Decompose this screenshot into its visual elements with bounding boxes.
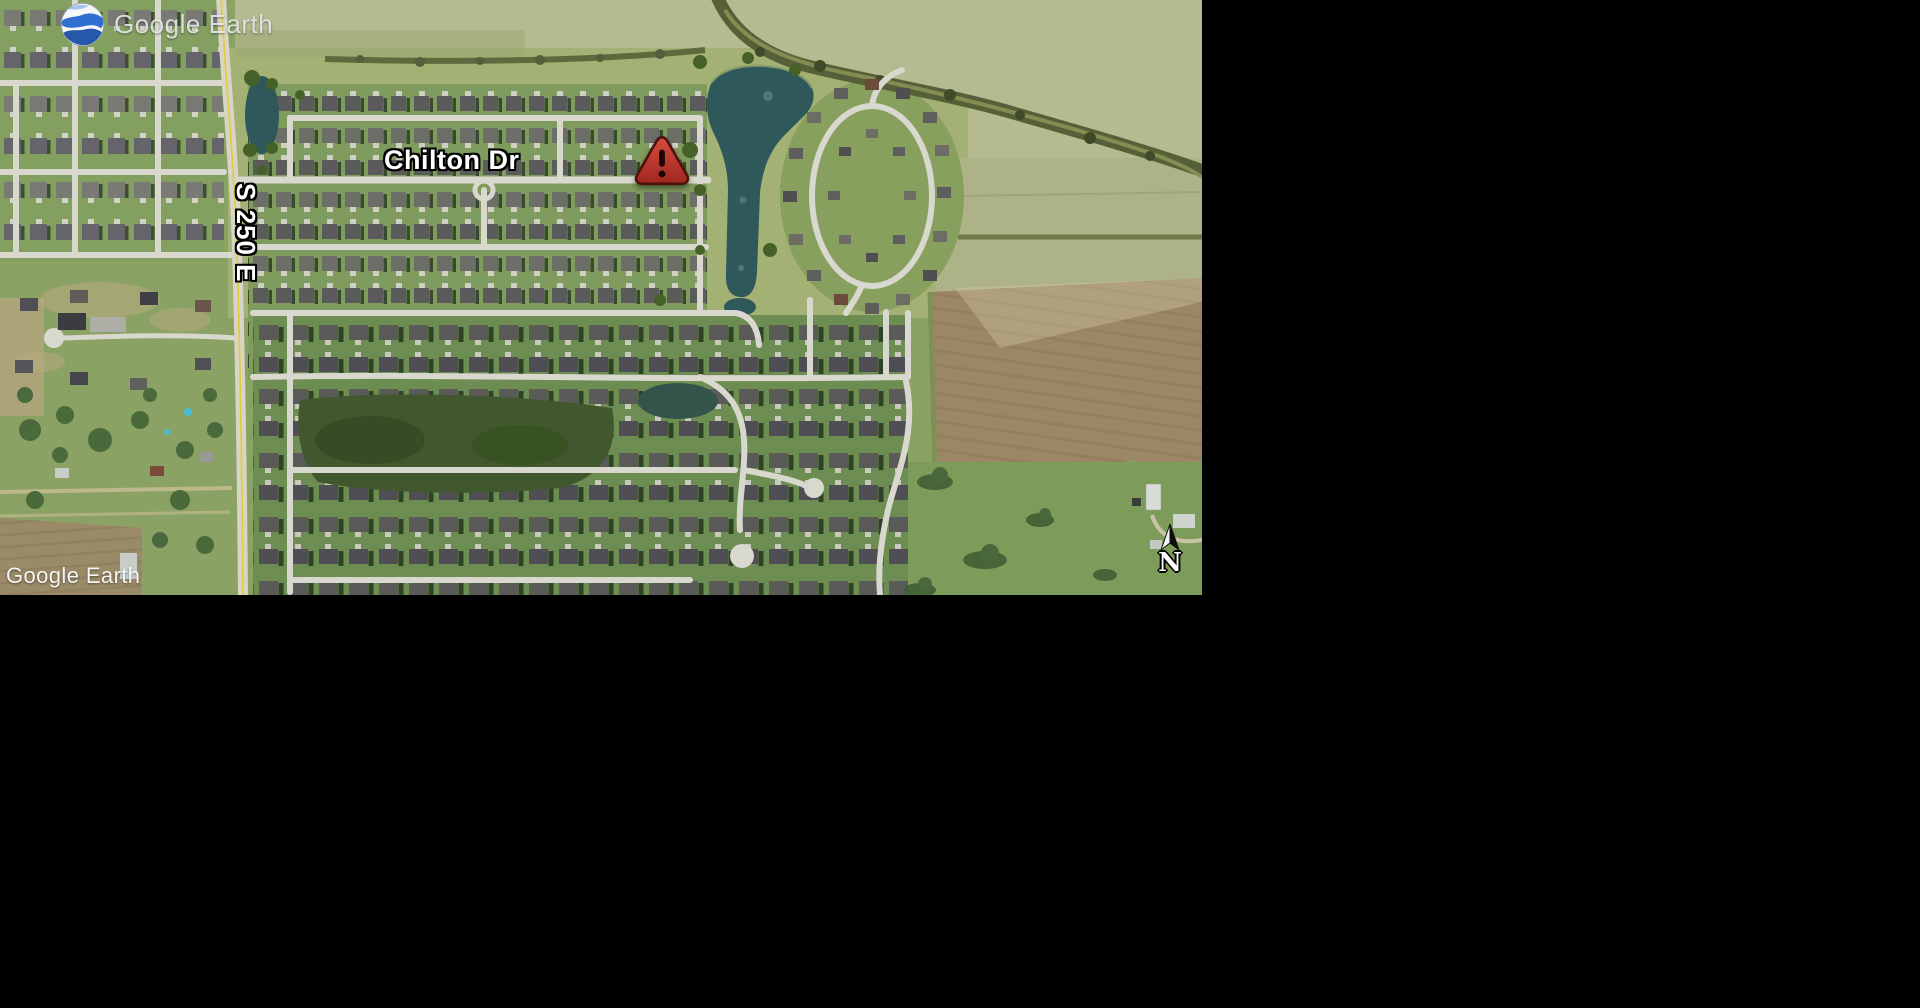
google-earth-watermark: Google Earth bbox=[6, 563, 140, 589]
street-label-chilton-dr: Chilton Dr bbox=[384, 147, 519, 174]
north-label: N bbox=[1158, 552, 1182, 575]
satellite-imagery bbox=[0, 0, 1202, 595]
logo-text: Google Earth bbox=[114, 9, 273, 40]
street-label-s-250-e: S 250 E bbox=[233, 183, 259, 283]
warning-marker-icon[interactable] bbox=[634, 134, 690, 188]
google-earth-logo: Google Earth bbox=[60, 0, 273, 48]
map-viewport[interactable]: Google Earth Chilton Dr S 250 E N bbox=[0, 0, 1202, 595]
north-indicator: N bbox=[1150, 523, 1190, 575]
google-earth-globe-icon bbox=[60, 2, 105, 47]
screen: Google Earth Chilton Dr S 250 E N bbox=[0, 0, 1920, 1008]
